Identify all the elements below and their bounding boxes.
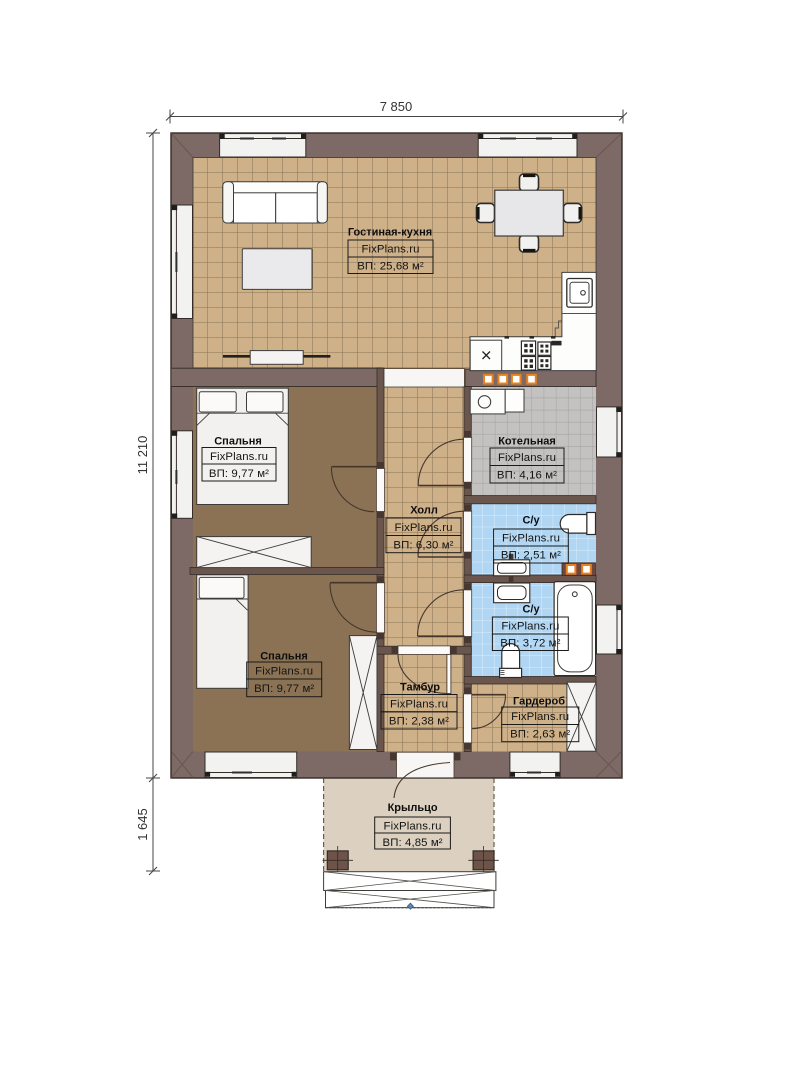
svg-text:ВП: 2,38 м²: ВП: 2,38 м²: [389, 716, 449, 728]
svg-text:FixPlans.ru: FixPlans.ru: [394, 522, 452, 534]
svg-text:FixPlans.ru: FixPlans.ru: [501, 621, 559, 633]
svg-text:FixPlans.ru: FixPlans.ru: [361, 244, 419, 256]
svg-text:FixPlans.ru: FixPlans.ru: [255, 666, 313, 678]
svg-text:FixPlans.ru: FixPlans.ru: [210, 451, 268, 463]
svg-text:Спальня: Спальня: [260, 651, 308, 663]
svg-text:С/у: С/у: [522, 515, 540, 527]
svg-text:1 645: 1 645: [135, 808, 150, 841]
svg-text:С/у: С/у: [522, 604, 540, 616]
svg-text:Гардероб: Гардероб: [513, 696, 565, 708]
svg-text:FixPlans.ru: FixPlans.ru: [384, 821, 442, 833]
svg-text:7 850: 7 850: [380, 99, 413, 114]
svg-text:ВП: 9,77 м²: ВП: 9,77 м²: [254, 683, 314, 695]
svg-text:ВП: 3,72 м²: ВП: 3,72 м²: [500, 637, 560, 649]
svg-text:ВП: 9,77 м²: ВП: 9,77 м²: [209, 468, 269, 480]
svg-text:FixPlans.ru: FixPlans.ru: [390, 698, 448, 710]
svg-text:ВП: 4,16 м²: ВП: 4,16 м²: [497, 470, 557, 482]
svg-text:FixPlans.ru: FixPlans.ru: [502, 533, 560, 545]
svg-text:ВП: 2,51 м²: ВП: 2,51 м²: [501, 550, 561, 562]
svg-text:Крыльцо: Крыльцо: [388, 802, 438, 814]
svg-text:Тамбур: Тамбур: [400, 682, 440, 694]
svg-text:ВП: 4,85 м²: ВП: 4,85 м²: [383, 837, 443, 849]
svg-text:FixPlans.ru: FixPlans.ru: [498, 452, 556, 464]
svg-text:Котельная: Котельная: [498, 436, 556, 448]
svg-text:Спальня: Спальня: [214, 436, 262, 448]
svg-text:ВП: 25,68 м²: ВП: 25,68 м²: [357, 261, 424, 273]
svg-text:ВП: 2,63 м²: ВП: 2,63 м²: [510, 728, 570, 740]
svg-text:11 210: 11 210: [135, 436, 150, 475]
svg-text:ВП: 6,30 м²: ВП: 6,30 м²: [393, 539, 453, 551]
svg-text:Холл: Холл: [410, 505, 438, 517]
svg-text:Гостиная-кухня: Гостиная-кухня: [348, 227, 432, 239]
svg-text:FixPlans.ru: FixPlans.ru: [511, 711, 569, 723]
